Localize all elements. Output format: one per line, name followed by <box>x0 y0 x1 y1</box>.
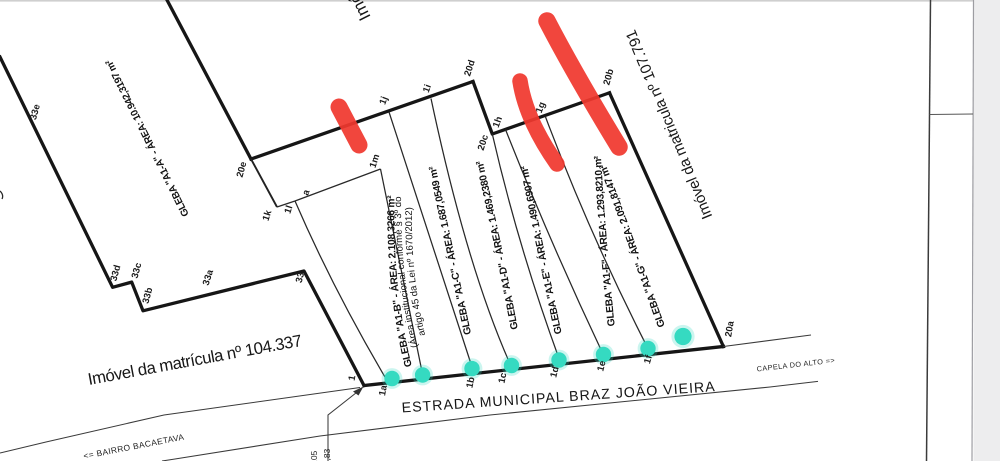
svg-text:15,05: 15,05 <box>309 450 319 461</box>
svg-text:1c: 1c <box>497 372 510 385</box>
svg-text:24,83: 24,83 <box>322 448 332 461</box>
